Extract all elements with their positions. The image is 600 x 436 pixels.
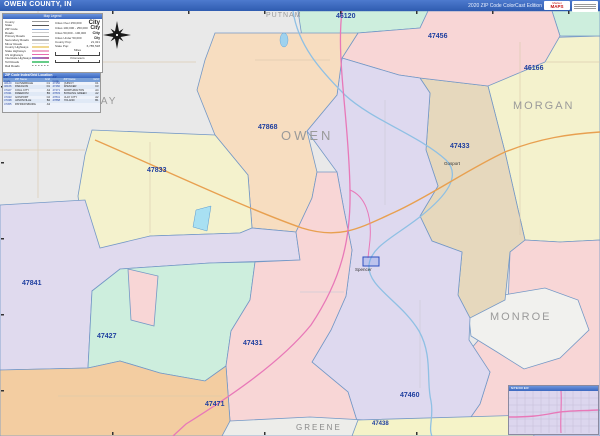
state-highway-swatch — [32, 50, 49, 52]
zip-label-47460: 47460 — [400, 392, 419, 399]
primary-roads-swatch — [32, 36, 49, 37]
county-label-greene: GREENE — [296, 423, 342, 432]
zip-region-47455 — [128, 269, 158, 326]
title-bar: OWEN COUNTY, IN 2020 ZIP Code ColorCast … — [0, 0, 600, 11]
zip-label-47841: 47841 — [22, 280, 41, 287]
stat-value: 6,785,528 — [87, 44, 100, 48]
city-size-label: Cities 50,000 - 100,000 — [55, 31, 86, 35]
city-sample: City — [92, 30, 100, 35]
county-label-owen: OWEN — [281, 128, 333, 143]
inset-extent-box — [363, 257, 379, 266]
zip-label-47427: 47427 — [97, 333, 116, 340]
legend-panel: Map Legend County State ZIP Code Roads P… — [2, 13, 103, 73]
legend-line-items: County State ZIP Code Roads Primary Road… — [3, 19, 55, 67]
city-inset-map: SPENCER — [508, 385, 599, 435]
interstate-swatch — [32, 57, 49, 59]
stat-label: State Pop: — [55, 44, 69, 48]
county-line-swatch — [32, 21, 49, 22]
county-label-monroe: MONROE — [490, 311, 552, 323]
zip-index-row: 47455PATRICKSBURGA3 — [3, 103, 52, 107]
compass-rose-icon — [102, 20, 132, 50]
city-label-spencer: Spencer — [355, 267, 372, 272]
zip-label-47431: 47431 — [243, 340, 262, 347]
zip-label-47471: 47471 — [205, 401, 224, 408]
publisher-info-box — [572, 1, 598, 12]
roads-line-swatch — [32, 32, 49, 33]
zip-label-47433: 47433 — [450, 143, 469, 150]
state-line-swatch — [32, 25, 49, 27]
secondary-roads-swatch — [32, 39, 49, 40]
marketmaps-logo: Market MAPS — [544, 1, 570, 10]
county-label-morgan: MORGAN — [513, 100, 575, 112]
minor-roads-swatch — [32, 43, 49, 44]
city-label-gosport: Gosport — [444, 161, 460, 166]
county-highway-swatch — [32, 46, 49, 48]
zip-line-swatch — [32, 29, 49, 30]
city-size-label: Cities Over 250,000 — [55, 21, 82, 25]
railroad-swatch — [32, 65, 49, 66]
logo-text: MAPS — [544, 5, 570, 10]
county-label-putnam: PUTNAM — [266, 12, 302, 19]
zip-index-row: 47868POLANDB1 — [52, 99, 101, 103]
zip-label-46120: 46120 — [336, 13, 355, 20]
zip-index-left-column: ZIP Code ZIP Name Grid 46120CLOVERDALEC1… — [3, 78, 52, 106]
city-size-label: Cities Under 50,000 — [55, 36, 82, 40]
zip-label-47456: 47456 — [428, 33, 447, 40]
zip-index-right-column: ZIP Code ZIP Name Grid 47456QUINCYC1 474… — [52, 78, 101, 106]
zip-label-47833: 47833 — [147, 167, 166, 174]
zip-index-panel: ZIP Code Index/Grid Location ZIP Code ZI… — [2, 72, 101, 113]
legend-city-sizes: Cities Over 250,000City Cities 100,000 -… — [55, 19, 102, 67]
zip-label-46166: 46166 — [524, 65, 543, 72]
page-title: OWEN COUNTY, IN — [4, 1, 72, 8]
inset-street-grid — [509, 391, 598, 433]
legend-item: Rail Roads — [5, 64, 32, 68]
zip-label-47438: 47438 — [372, 421, 389, 427]
scale-bar-miles: Miles — [55, 49, 100, 56]
city-sample: City — [94, 36, 100, 40]
map-page: OWEN COUNTY, IN 2020 ZIP Code ColorCast … — [0, 0, 600, 436]
lake-north — [280, 33, 288, 47]
us-highway-swatch — [32, 54, 49, 56]
scale-bar-kilometers: Kilometers — [55, 57, 100, 64]
toll-roads-swatch — [32, 61, 49, 63]
zip-label-47868: 47868 — [258, 124, 277, 131]
city-size-label: Cities 100,000 - 250,000 — [55, 26, 88, 30]
edition-label: 2020 ZIP Code ColorCast Edition — [468, 3, 542, 9]
